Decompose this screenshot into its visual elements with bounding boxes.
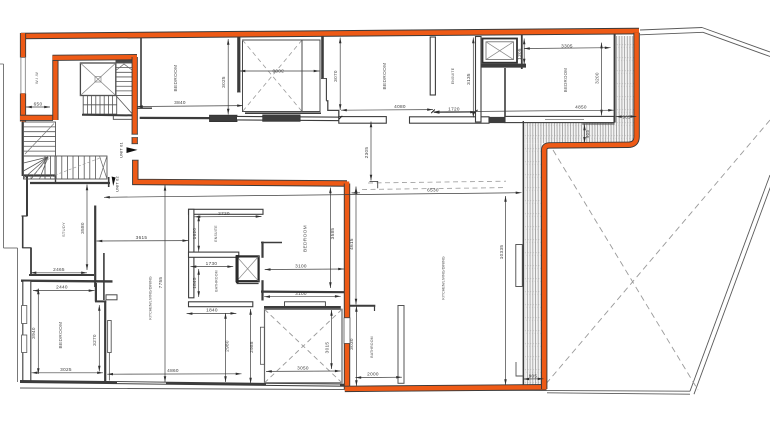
svg-text:4615: 4615 <box>349 238 354 250</box>
svg-text:3135: 3135 <box>466 73 471 85</box>
svg-text:3305: 3305 <box>561 43 573 48</box>
svg-text:KITCHEN/LIVING/DINING: KITCHEN/LIVING/DINING <box>149 276 153 319</box>
svg-text:UNIT 01: UNIT 01 <box>119 142 124 158</box>
svg-text:3200: 3200 <box>594 72 599 84</box>
svg-text:BEDROOM: BEDROOM <box>563 68 568 93</box>
svg-text:3100: 3100 <box>295 291 307 296</box>
svg-text:2980: 2980 <box>224 340 229 352</box>
svg-text:3025: 3025 <box>221 76 226 88</box>
svg-text:BEDROOM: BEDROOM <box>58 322 64 349</box>
svg-text:3025: 3025 <box>60 367 72 372</box>
svg-text:905: 905 <box>585 130 590 138</box>
svg-text:1720: 1720 <box>448 107 460 112</box>
svg-text:3585: 3585 <box>330 228 335 240</box>
svg-text:2465: 2465 <box>53 267 65 272</box>
svg-text:3270: 3270 <box>92 334 97 346</box>
svg-text:STUDY: STUDY <box>61 222 66 237</box>
svg-text:650: 650 <box>34 101 43 106</box>
svg-text:6530: 6530 <box>427 187 439 192</box>
svg-text:BEDROOM: BEDROOM <box>173 65 179 92</box>
svg-text:3050: 3050 <box>297 366 309 371</box>
svg-text:BATHROOM: BATHROOM <box>370 336 374 358</box>
svg-text:2985: 2985 <box>249 341 254 353</box>
svg-text:10335: 10335 <box>499 245 504 260</box>
svg-text:3070: 3070 <box>333 70 338 82</box>
svg-text:W.I.W: W.I.W <box>34 72 39 84</box>
svg-text:3015: 3015 <box>324 342 329 354</box>
svg-text:BEDROOM: BEDROOM <box>382 63 388 90</box>
svg-text:ENSUITE: ENSUITE <box>451 67 455 84</box>
svg-text:4860: 4860 <box>167 368 179 373</box>
svg-text:4850: 4850 <box>575 104 587 109</box>
svg-text:3580: 3580 <box>80 222 85 234</box>
svg-text:905: 905 <box>622 115 630 120</box>
svg-text:1845: 1845 <box>192 277 197 289</box>
svg-text:3840: 3840 <box>174 100 186 105</box>
svg-text:2720: 2720 <box>218 211 230 216</box>
svg-text:BEDROOM: BEDROOM <box>303 225 309 252</box>
svg-text:2440: 2440 <box>56 285 68 290</box>
svg-text:1620: 1620 <box>192 228 197 240</box>
svg-text:3000: 3000 <box>272 68 284 73</box>
svg-text:3100: 3100 <box>295 264 307 269</box>
svg-text:1730: 1730 <box>206 261 218 266</box>
svg-text:905: 905 <box>529 373 538 378</box>
svg-text:3030: 3030 <box>349 338 354 350</box>
svg-text:3940: 3940 <box>31 327 36 339</box>
svg-text:2000: 2000 <box>367 372 379 377</box>
svg-text:1840: 1840 <box>206 308 218 313</box>
svg-text:BATHROOM: BATHROOM <box>214 270 218 292</box>
svg-text:ENSUITE: ENSUITE <box>214 225 218 242</box>
svg-text:4080: 4080 <box>394 104 406 109</box>
svg-text:1205: 1205 <box>517 48 522 60</box>
svg-text:7755: 7755 <box>158 277 163 289</box>
svg-text:3615: 3615 <box>136 235 148 240</box>
svg-text:KITCHEN/LIVING/DINING: KITCHEN/LIVING/DINING <box>442 256 446 299</box>
svg-text:2305: 2305 <box>364 147 369 159</box>
